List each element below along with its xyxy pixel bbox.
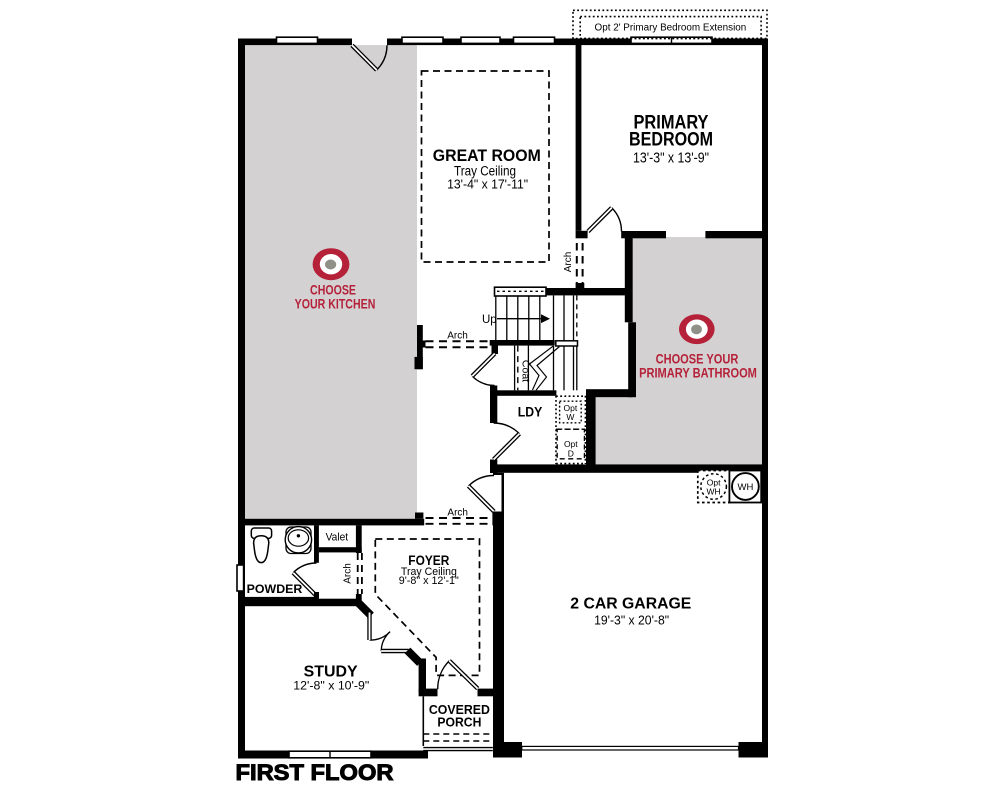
svg-text:YOUR KITCHEN: YOUR KITCHEN <box>295 296 376 312</box>
svg-text:2 CAR GARAGE: 2 CAR GARAGE <box>570 596 691 613</box>
svg-text:Up: Up <box>482 314 497 326</box>
svg-text:9'-8" x 12'-1": 9'-8" x 12'-1" <box>399 575 459 587</box>
svg-text:12'-8" x 10'-9": 12'-8" x 10'-9" <box>293 678 369 692</box>
svg-text:Opt 2' Primary Bedroom Extensi: Opt 2' Primary Bedroom Extension <box>595 23 747 34</box>
svg-text:Arch: Arch <box>342 563 353 584</box>
svg-text:Arch: Arch <box>447 507 468 518</box>
svg-text:D: D <box>568 449 574 459</box>
svg-text:Opt: Opt <box>564 439 578 449</box>
svg-text:Arch: Arch <box>563 252 574 273</box>
svg-text:Coat: Coat <box>520 360 532 382</box>
svg-text:POWDER: POWDER <box>247 582 303 596</box>
svg-text:GREAT ROOM: GREAT ROOM <box>433 147 541 165</box>
svg-text:Valet: Valet <box>326 531 349 543</box>
svg-text:WH: WH <box>707 487 721 497</box>
svg-text:PORCH: PORCH <box>437 716 481 730</box>
svg-text:W: W <box>566 412 574 422</box>
svg-text:13'-3" x 13'-9": 13'-3" x 13'-9" <box>633 150 709 167</box>
svg-text:BEDROOM: BEDROOM <box>629 129 713 150</box>
svg-text:LDY: LDY <box>518 404 543 419</box>
svg-text:Arch: Arch <box>447 331 468 342</box>
svg-text:WH: WH <box>737 482 753 493</box>
svg-text:19'-3" x 20'-8": 19'-3" x 20'-8" <box>594 613 669 627</box>
svg-text:FIRST FLOOR: FIRST FLOOR <box>236 760 394 785</box>
svg-text:PRIMARY BATHROOM: PRIMARY BATHROOM <box>639 364 757 381</box>
svg-text:13'-4" x 17'-11": 13'-4" x 17'-11" <box>447 177 528 192</box>
